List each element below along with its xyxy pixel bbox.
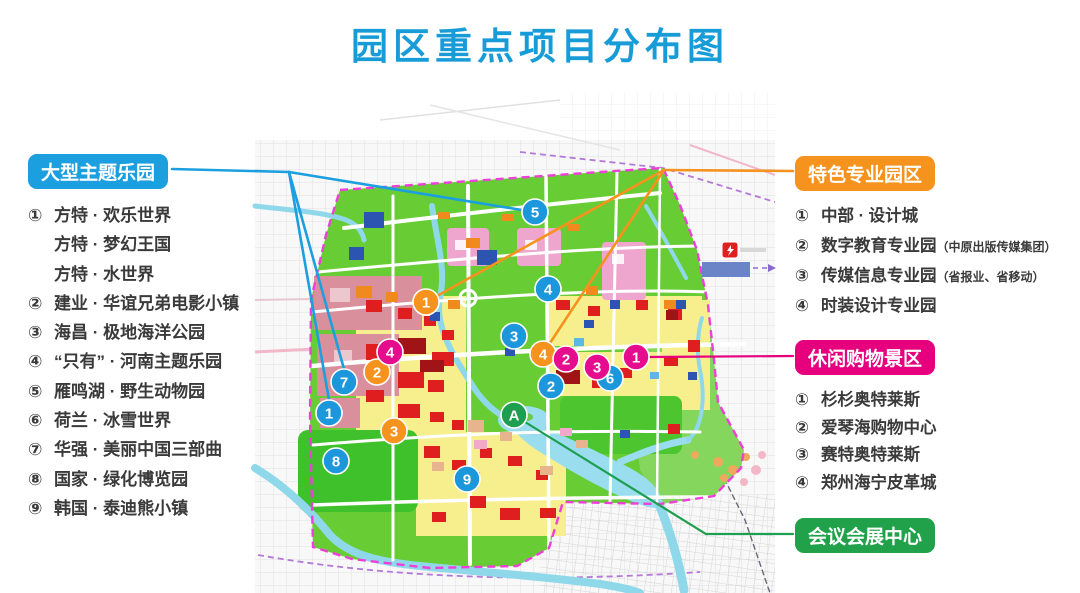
- svg-text:2: 2: [562, 351, 570, 368]
- map-marker-shopping-3: 3: [584, 354, 610, 380]
- map-marker-special_parks-3: 3: [381, 418, 407, 444]
- legend-special-parks: 特色专业园区 ①中部 · 设计城②数字教育专业园（中原出版传媒集团）③传媒信息专…: [795, 156, 1057, 321]
- legend-item-text: 韩国 · 泰迪熊小镇: [54, 499, 188, 518]
- legend-item-number: ⑧: [28, 465, 54, 494]
- legend-convention: 会议会展中心: [795, 518, 935, 553]
- svg-text:3: 3: [510, 328, 518, 345]
- legend-item-number: ②: [28, 289, 54, 318]
- legend-item-number: ⑤: [28, 377, 54, 406]
- infographic-canvas: 54371892612344231A 园区重点项目分布图 大型主题乐园 ①方特 …: [0, 0, 1080, 593]
- legend-item-text: 传媒信息专业园: [821, 267, 937, 285]
- svg-text:A: A: [509, 407, 520, 424]
- legend-item: ⑨韩国 · 泰迪熊小镇: [28, 494, 239, 523]
- legend-item: 方特 · 梦幻王国: [28, 230, 239, 259]
- legend-item-text: 郑州海宁皮革城: [821, 474, 937, 492]
- legend-theme-parks: 大型主题乐园 ①方特 · 欢乐世界方特 · 梦幻王国方特 · 水世界②建业 · …: [28, 154, 239, 523]
- legend-item: ④“只有” · 河南主题乐园: [28, 347, 239, 376]
- legend-item: ③传媒信息专业园（省报业、省移动）: [795, 261, 1057, 291]
- legend-item-number: ⑨: [28, 494, 54, 523]
- svg-text:1: 1: [325, 405, 333, 422]
- legend-item-number: ①: [28, 201, 54, 230]
- map-marker-theme_parks-2: 2: [538, 373, 564, 399]
- legend-item-text: 荷兰 · 冰雪世界: [54, 411, 171, 430]
- legend-item-subtext: （省报业、省移动）: [937, 270, 1045, 284]
- legend-item-number: ④: [28, 347, 54, 376]
- legend-item-text: 华强 · 美丽中国三部曲: [54, 440, 222, 459]
- legend-item-text: 建业 · 华谊兄弟电影小镇: [54, 294, 239, 313]
- legend-item-number: ①: [795, 201, 821, 231]
- map-marker-shopping-2: 2: [553, 346, 579, 372]
- legend-item-text: 方特 · 梦幻王国: [54, 235, 171, 254]
- svg-text:7: 7: [340, 374, 348, 391]
- legend-item-number: ②: [795, 415, 821, 443]
- legend-item: ①中部 · 设计城: [795, 201, 1057, 231]
- legend-item-text: 中部 · 设计城: [821, 207, 918, 225]
- legend-item: ①方特 · 欢乐世界: [28, 201, 239, 230]
- legend-item: ①杉杉奥特莱斯: [795, 387, 937, 415]
- legend-header-shopping: 休闲购物景区: [795, 340, 935, 375]
- svg-text:1: 1: [422, 294, 430, 311]
- legend-item: ④时装设计专业园: [795, 291, 1057, 321]
- legend-item-text: 国家 · 绿化博览园: [54, 470, 188, 489]
- legend-item-text: 爱琴海购物中心: [821, 419, 937, 437]
- legend-item-text: 方特 · 水世界: [54, 265, 154, 284]
- legend-item: ⑧国家 · 绿化博览园: [28, 465, 239, 494]
- legend-item: ⑤雁鸣湖 · 野生动物园: [28, 377, 239, 406]
- legend-item-number: ②: [795, 231, 821, 261]
- map-marker-special_parks-1: 1: [413, 289, 439, 315]
- legend-item-number: ①: [795, 387, 821, 415]
- legend-item: ⑥荷兰 · 冰雪世界: [28, 406, 239, 435]
- legend-item-number: ④: [795, 470, 821, 498]
- legend-header-convention: 会议会展中心: [795, 518, 935, 553]
- legend-item: ③海昌 · 极地海洋公园: [28, 318, 239, 347]
- legend-item: ④郑州海宁皮革城: [795, 470, 937, 498]
- map-marker-convention-A: A: [501, 402, 527, 428]
- legend-item-number: ③: [28, 318, 54, 347]
- legend-header-theme-parks: 大型主题乐园: [28, 154, 168, 189]
- legend-list-special-parks: ①中部 · 设计城②数字教育专业园（中原出版传媒集团）③传媒信息专业园（省报业、…: [795, 201, 1057, 321]
- legend-item: ⑦华强 · 美丽中国三部曲: [28, 435, 239, 464]
- map-marker-theme_parks-7: 7: [331, 369, 357, 395]
- svg-text:2: 2: [373, 364, 381, 381]
- map-marker-shopping-4: 4: [377, 339, 403, 365]
- legend-item-number: ④: [795, 291, 821, 321]
- legend-item-text: 时装设计专业园: [821, 297, 937, 315]
- legend-item-number: ③: [795, 261, 821, 291]
- map-marker-theme_parks-9: 9: [454, 466, 480, 492]
- legend-header-special-parks: 特色专业园区: [795, 156, 935, 191]
- map-marker-theme_parks-3: 3: [501, 323, 527, 349]
- svg-text:3: 3: [390, 423, 398, 440]
- legend-list-shopping: ①杉杉奥特莱斯②爱琴海购物中心③赛特奥特莱斯④郑州海宁皮革城: [795, 387, 937, 497]
- legend-shopping: 休闲购物景区 ①杉杉奥特莱斯②爱琴海购物中心③赛特奥特莱斯④郑州海宁皮革城: [795, 340, 937, 497]
- legend-item-number: ⑥: [28, 406, 54, 435]
- connector-shopping: [649, 356, 793, 357]
- legend-item: ③赛特奥特莱斯: [795, 442, 937, 470]
- legend-item-text: 赛特奥特莱斯: [821, 446, 920, 464]
- map-marker-theme_parks-4: 4: [535, 276, 561, 302]
- svg-text:4: 4: [544, 281, 553, 298]
- svg-text:9: 9: [463, 471, 471, 488]
- map-marker-theme_parks-8: 8: [323, 448, 349, 474]
- legend-item: 方特 · 水世界: [28, 260, 239, 289]
- legend-item-subtext: （中原出版传媒集团）: [937, 240, 1057, 254]
- map-label-box: [702, 262, 750, 277]
- svg-text:1: 1: [632, 349, 640, 366]
- map-marker-special_parks-4: 4: [530, 341, 556, 367]
- map-marker-theme_parks-5: 5: [522, 199, 548, 225]
- map-marker-theme_parks-1: 1: [316, 400, 342, 426]
- svg-text:4: 4: [539, 346, 548, 363]
- legend-item: ②数字教育专业园（中原出版传媒集团）: [795, 231, 1057, 261]
- svg-text:5: 5: [531, 204, 539, 221]
- page-title: 园区重点项目分布图: [0, 16, 1080, 70]
- svg-text:4: 4: [386, 344, 395, 361]
- legend-item: ②建业 · 华谊兄弟电影小镇: [28, 289, 239, 318]
- legend-item-text: 雁鸣湖 · 野生动物园: [54, 382, 205, 401]
- legend-item-text: 数字教育专业园: [821, 237, 937, 255]
- legend-list-theme-parks: ①方特 · 欢乐世界方特 · 梦幻王国方特 · 水世界②建业 · 华谊兄弟电影小…: [28, 201, 239, 523]
- legend-item: ②爱琴海购物中心: [795, 415, 937, 443]
- legend-item-text: 方特 · 欢乐世界: [54, 206, 171, 225]
- svg-text:2: 2: [547, 378, 555, 395]
- legend-item-number: ③: [795, 442, 821, 470]
- legend-item-text: 杉杉奥特莱斯: [821, 391, 920, 409]
- legend-item-text: “只有” · 河南主题乐园: [54, 352, 222, 371]
- svg-text:3: 3: [593, 359, 601, 376]
- legend-item-number: ⑦: [28, 435, 54, 464]
- legend-item-text: 海昌 · 极地海洋公园: [54, 323, 205, 342]
- svg-text:8: 8: [332, 453, 340, 470]
- map-marker-shopping-1: 1: [623, 344, 649, 370]
